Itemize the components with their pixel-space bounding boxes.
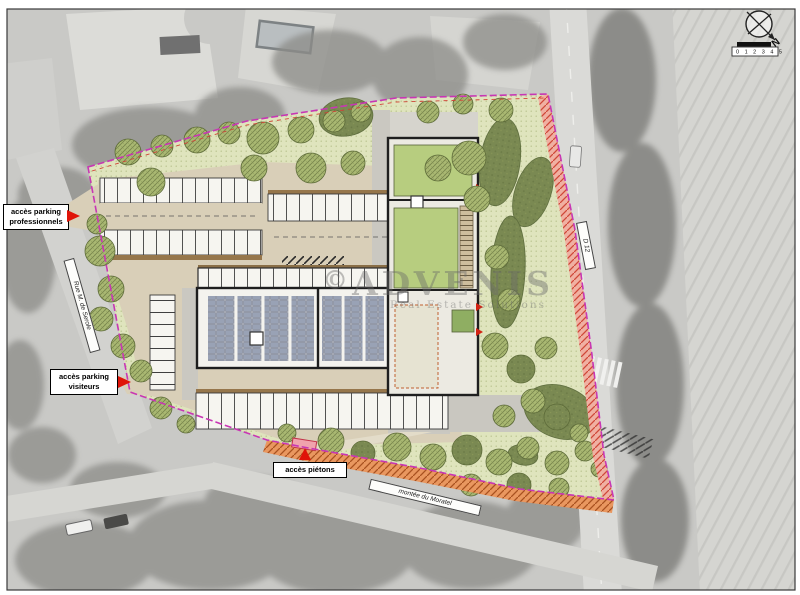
tree [296, 153, 326, 183]
scale-bar-labels: 0 1 2 3 4 5 [736, 50, 784, 56]
access-visitors-label: accès parking visiteurs [50, 369, 118, 395]
tree [545, 451, 569, 475]
solar-array-left [208, 296, 314, 361]
tree [241, 155, 267, 181]
tree [420, 444, 446, 470]
tree [535, 337, 557, 359]
tree [383, 433, 411, 461]
tree [489, 98, 513, 122]
ramp [460, 206, 473, 288]
access-professional-label: accès parking professionnels [3, 204, 69, 230]
tree [482, 333, 508, 359]
tree [341, 151, 365, 175]
tree [486, 449, 512, 475]
tree [323, 110, 345, 132]
solar-array-right [322, 296, 384, 361]
tree [493, 405, 515, 427]
tree [177, 415, 195, 433]
patio-lawn [452, 310, 474, 332]
tree [184, 127, 210, 153]
green-roof-lower [394, 208, 458, 288]
tree [507, 355, 535, 383]
access-pedestrian-label: accès piétons [273, 462, 347, 478]
tree [452, 435, 482, 465]
parking-west-column [150, 295, 175, 390]
tree [544, 404, 570, 430]
tree [130, 360, 152, 382]
tree [247, 122, 279, 154]
access-visitors-arrow-icon [118, 376, 131, 388]
carport-row [198, 265, 392, 290]
tree [425, 155, 451, 181]
site-plan-screenshot: N 0 1 2 3 4 5 accès parking professionne… [0, 0, 800, 595]
tree [517, 437, 539, 459]
tree [485, 245, 509, 269]
tree [464, 186, 490, 212]
tree [218, 122, 240, 144]
tree [288, 117, 314, 143]
central-building [197, 288, 390, 368]
tree [570, 424, 588, 442]
tree [498, 289, 520, 311]
tree [417, 101, 439, 123]
rooflight [250, 332, 263, 345]
access-professional-arrow-icon [67, 210, 80, 222]
access-pedestrian-arrow-icon [299, 448, 311, 460]
courtyard [395, 305, 438, 388]
site-plan-drawing: N 0 1 2 3 4 5 [0, 0, 800, 595]
tree [85, 236, 115, 266]
tree [521, 389, 545, 413]
tree [137, 168, 165, 196]
tree [452, 141, 486, 175]
parking-north-left [100, 178, 262, 260]
